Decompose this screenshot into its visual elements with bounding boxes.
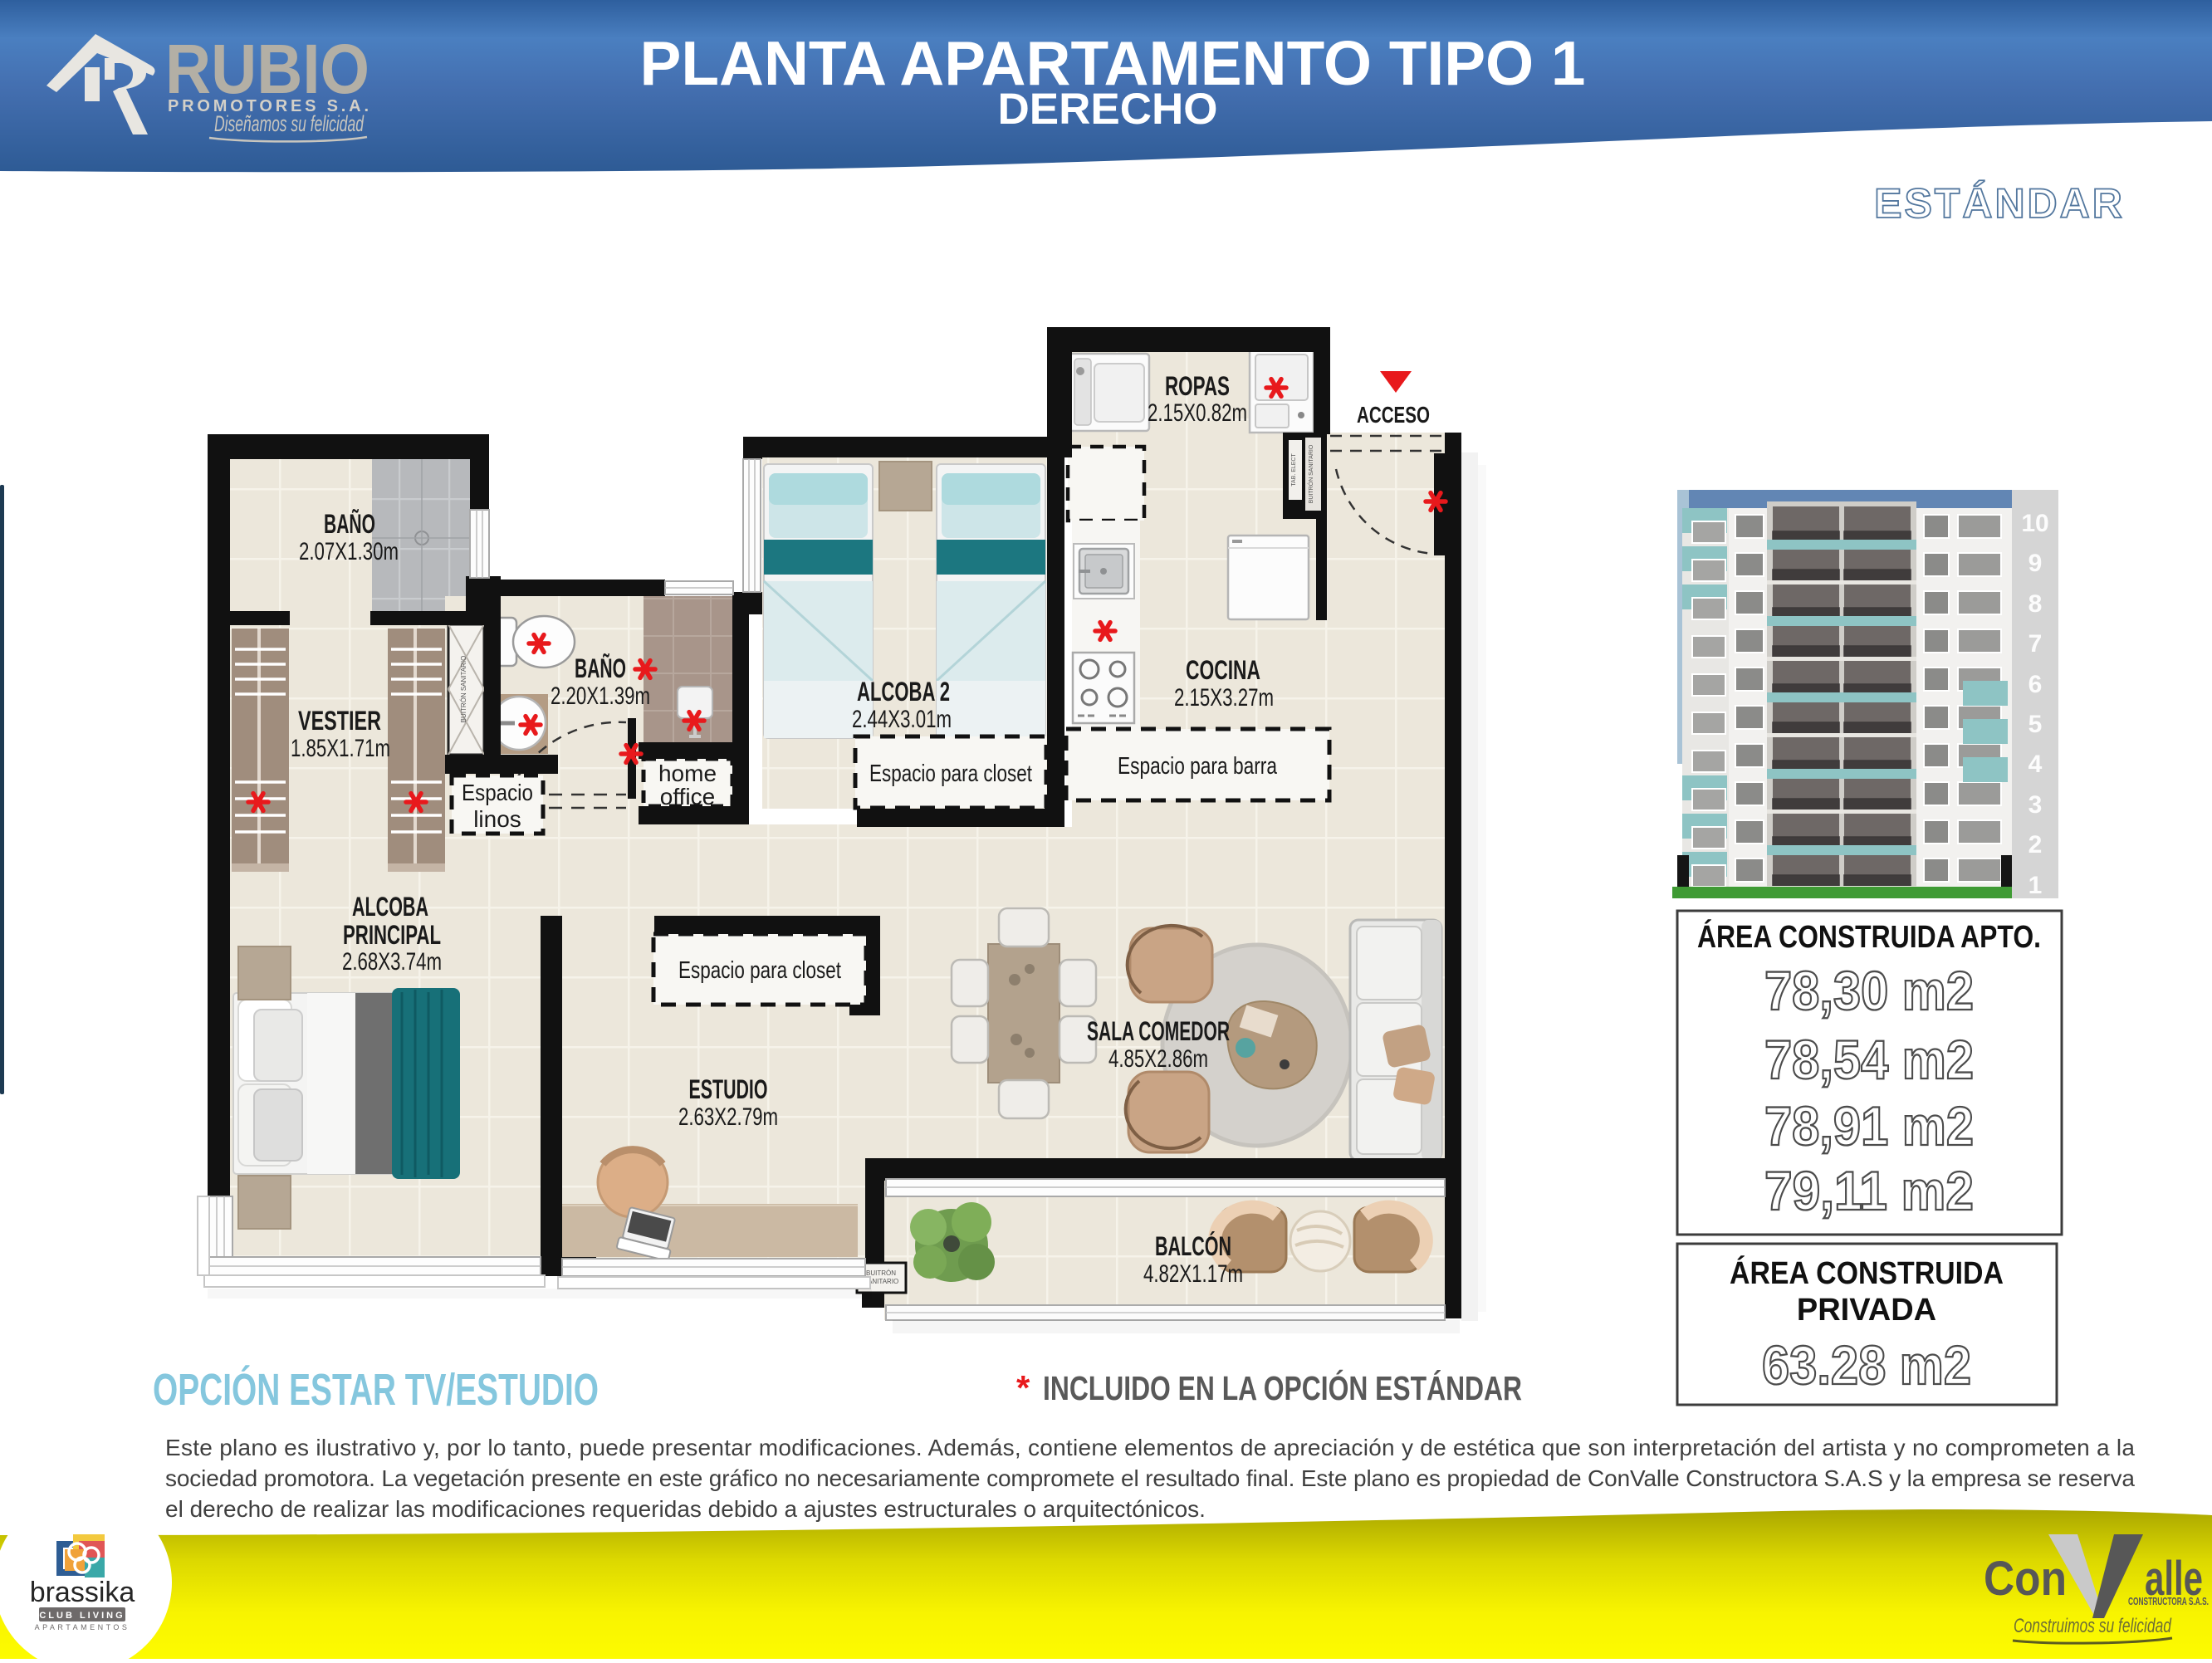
svg-text:PRINCIPAL: PRINCIPAL xyxy=(343,920,441,950)
svg-text:3: 3 xyxy=(2028,791,2043,819)
svg-text:CONSTRUCTORA S.A.S.: CONSTRUCTORA S.A.S. xyxy=(2128,1595,2209,1607)
svg-text:ALCOBA 2: ALCOBA 2 xyxy=(857,677,950,707)
svg-text:BUITRÓN: BUITRÓN xyxy=(866,1269,896,1277)
svg-text:DERECHO: DERECHO xyxy=(997,85,1217,134)
svg-text:brassika: brassika xyxy=(30,1577,135,1608)
svg-text:VESTIER: VESTIER xyxy=(298,706,381,736)
svg-text:4: 4 xyxy=(2028,751,2043,778)
svg-text:BAÑO: BAÑO xyxy=(324,509,375,539)
svg-text:RUBIO: RUBIO xyxy=(165,30,369,108)
svg-text:2.15X0.82m: 2.15X0.82m xyxy=(1148,399,1247,427)
svg-text:2.63X2.79m: 2.63X2.79m xyxy=(678,1103,778,1131)
svg-text:2.44X3.01m: 2.44X3.01m xyxy=(852,706,952,733)
svg-text:INCLUIDO EN LA OPCIÓN ESTÁNDAR: INCLUIDO EN LA OPCIÓN ESTÁNDAR xyxy=(1043,1369,1522,1407)
svg-text:8: 8 xyxy=(2028,590,2043,618)
svg-text:CLUB LIVING: CLUB LIVING xyxy=(39,1611,125,1621)
svg-text:7: 7 xyxy=(2028,630,2043,658)
svg-text:SALA COMEDOR: SALA COMEDOR xyxy=(1087,1016,1230,1046)
svg-text:OPCIÓN ESTAR TV/ESTUDIO: OPCIÓN ESTAR TV/ESTUDIO xyxy=(153,1365,599,1415)
svg-text:4.82X1.17m: 4.82X1.17m xyxy=(1143,1260,1243,1288)
svg-text:BALCÓN: BALCÓN xyxy=(1155,1231,1231,1261)
svg-text:TAB. ELECT: TAB. ELECT xyxy=(1291,453,1297,487)
svg-text:1.85X1.71m: 1.85X1.71m xyxy=(291,735,390,762)
svg-text:Este plano es ilustrativo y, p: Este plano es ilustrativo y, por lo tant… xyxy=(165,1435,2135,1460)
svg-text:78,91 m2: 78,91 m2 xyxy=(1764,1095,1974,1157)
svg-text:63.28 m2: 63.28 m2 xyxy=(1762,1334,1971,1396)
svg-text:78,54 m2: 78,54 m2 xyxy=(1764,1029,1974,1090)
svg-text:2: 2 xyxy=(2028,831,2043,858)
svg-text:79,11 m2: 79,11 m2 xyxy=(1764,1160,1974,1221)
svg-text:COCINA: COCINA xyxy=(1186,655,1260,685)
svg-text:4.85X2.86m: 4.85X2.86m xyxy=(1108,1045,1208,1073)
svg-text:Diseñamos su felicidad: Diseñamos su felicidad xyxy=(214,111,365,136)
svg-text:10: 10 xyxy=(2021,510,2048,537)
svg-text:78,30 m2: 78,30 m2 xyxy=(1764,960,1974,1021)
svg-text:2.68X3.74m: 2.68X3.74m xyxy=(342,948,442,976)
svg-text:Con: Con xyxy=(1984,1552,2067,1606)
svg-text:PRIVADA: PRIVADA xyxy=(1797,1293,1936,1328)
svg-text:office: office xyxy=(660,784,715,809)
svg-text:BUITRÓN SANITARIO: BUITRÓN SANITARIO xyxy=(1307,444,1314,503)
svg-text:linos: linos xyxy=(473,806,521,832)
svg-text:el derecho de realizar las mod: el derecho de realizar las modificacione… xyxy=(165,1496,1206,1522)
svg-text:home: home xyxy=(658,761,717,786)
svg-text:Espacio: Espacio xyxy=(462,780,533,805)
svg-text:Espacio para closet: Espacio para closet xyxy=(869,761,1032,787)
svg-text:2.15X3.27m: 2.15X3.27m xyxy=(1174,684,1274,712)
svg-text:ACCESO: ACCESO xyxy=(1357,402,1430,428)
svg-text:5: 5 xyxy=(2028,711,2043,738)
svg-text:6: 6 xyxy=(2028,671,2043,698)
svg-text:Espacio para barra: Espacio para barra xyxy=(1118,753,1278,780)
svg-text:sociedad promotora. La vegetac: sociedad promotora. La vegetación presen… xyxy=(165,1465,2135,1491)
svg-text:APARTAMENTOS: APARTAMENTOS xyxy=(35,1623,130,1631)
svg-text:1: 1 xyxy=(2028,872,2043,899)
svg-text:ESTÁNDAR: ESTÁNDAR xyxy=(1874,180,2125,227)
svg-text:Construimos su felicidad: Construimos su felicidad xyxy=(2014,1615,2171,1637)
svg-text:BAÑO: BAÑO xyxy=(575,653,626,683)
svg-text:2.20X1.39m: 2.20X1.39m xyxy=(551,682,650,710)
svg-text:ESTUDIO: ESTUDIO xyxy=(689,1074,768,1104)
svg-text:9: 9 xyxy=(2028,550,2043,577)
svg-text:ÁREA CONSTRUIDA: ÁREA CONSTRUIDA xyxy=(1730,1255,2004,1291)
svg-text:2.07X1.30m: 2.07X1.30m xyxy=(299,538,399,565)
svg-text:ÁREA CONSTRUIDA APTO.: ÁREA CONSTRUIDA APTO. xyxy=(1697,918,2041,955)
svg-text:Espacio para closet: Espacio para closet xyxy=(678,957,841,984)
svg-text:BUITRÓN SANITARIO: BUITRÓN SANITARIO xyxy=(460,656,467,723)
svg-text:ROPAS: ROPAS xyxy=(1165,371,1230,401)
svg-text:*: * xyxy=(1016,1368,1030,1407)
svg-text:ALCOBA: ALCOBA xyxy=(352,892,428,922)
